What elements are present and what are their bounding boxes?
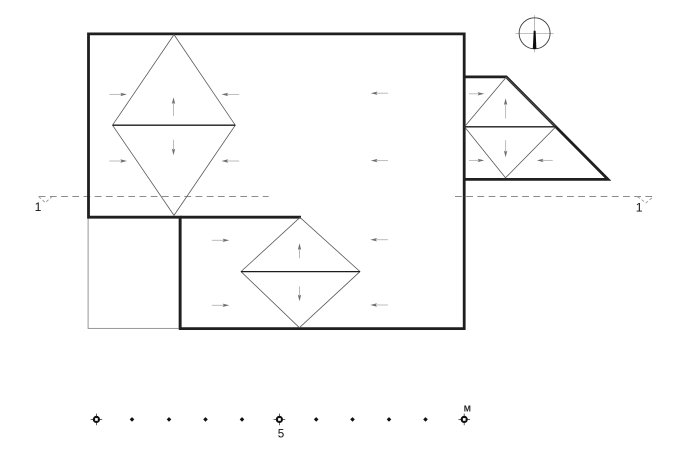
svg-text:5: 5 (278, 428, 284, 441)
svg-text:M: M (464, 403, 471, 413)
svg-text:1: 1 (636, 201, 643, 215)
svg-text:1: 1 (35, 200, 42, 214)
